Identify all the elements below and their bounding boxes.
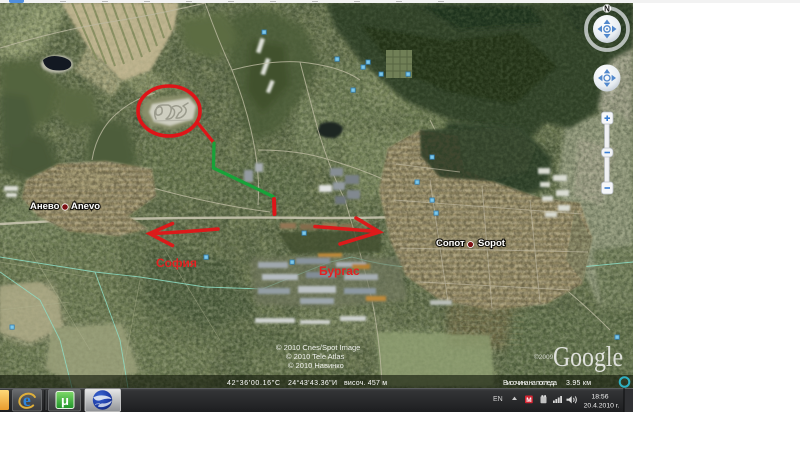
- svg-text:Sopot: Sopot: [478, 238, 506, 249]
- svg-text:Анево: Анево: [30, 201, 60, 212]
- svg-text:N: N: [604, 5, 610, 14]
- svg-text:18:56: 18:56: [591, 394, 608, 401]
- svg-text:© 2010 Cnes/Spot Image: © 2010 Cnes/Spot Image: [276, 343, 360, 352]
- svg-text:©2009: ©2009: [534, 353, 554, 361]
- svg-text:© 2010 Навинко: © 2010 Навинко: [288, 361, 344, 370]
- svg-text:20.4.2010 г.: 20.4.2010 г.: [584, 402, 620, 409]
- svg-text:μ: μ: [61, 393, 69, 408]
- svg-text:24°43'43.36"И: 24°43'43.36"И: [288, 379, 337, 387]
- svg-text:3.95 км: 3.95 км: [566, 380, 591, 387]
- svg-text:Сопот: Сопот: [436, 238, 465, 249]
- svg-text:Anevo: Anevo: [71, 201, 100, 212]
- svg-text:Бургас: Бургас: [319, 264, 360, 278]
- svg-text:височ. 457 м: височ. 457 м: [344, 380, 387, 387]
- svg-text:M: M: [526, 397, 531, 404]
- svg-text:© 2010 Tele Atlas: © 2010 Tele Atlas: [286, 352, 345, 361]
- svg-text:Височина на погледа: Височина на погледа: [503, 380, 557, 387]
- svg-text:42°36'00.16"С: 42°36'00.16"С: [227, 379, 280, 387]
- svg-text:Google: Google: [553, 341, 623, 373]
- svg-text:EN: EN: [493, 396, 503, 403]
- svg-text:София: София: [156, 256, 197, 270]
